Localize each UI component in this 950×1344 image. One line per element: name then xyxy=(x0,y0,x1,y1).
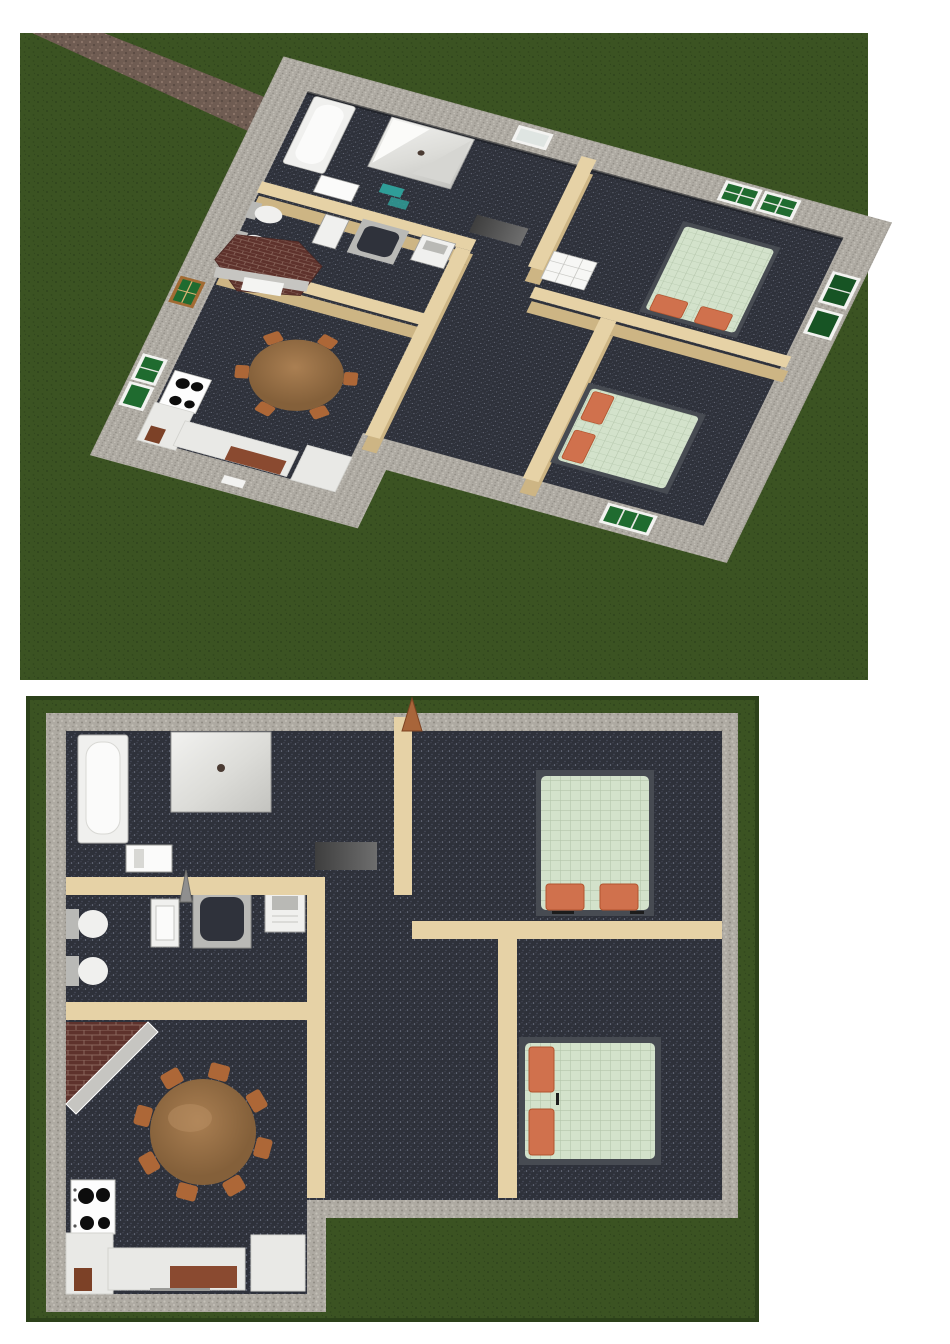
render-3d-view xyxy=(20,33,888,680)
toilet-tank xyxy=(66,909,79,939)
bed-leg-mark xyxy=(630,911,644,914)
vanity-basin xyxy=(200,897,244,941)
dresser xyxy=(315,842,377,870)
bathtub-basin xyxy=(86,742,120,834)
shower-drain xyxy=(217,764,225,772)
page-canvas xyxy=(0,0,950,1344)
wall-dining-north xyxy=(66,1002,325,1020)
toilet-tank-2 xyxy=(66,956,79,986)
cutting-board xyxy=(170,1266,237,1288)
pillow xyxy=(529,1109,554,1155)
floor-plan-view xyxy=(28,698,757,1320)
wall-entry xyxy=(394,717,412,895)
toilet-bowl-2 xyxy=(78,957,108,985)
bedroom2-plan xyxy=(519,1037,661,1165)
wall-bath-divider xyxy=(66,877,325,895)
pillow xyxy=(600,884,638,910)
bidet-basin xyxy=(156,906,174,940)
bed-leg-mark xyxy=(556,1093,559,1105)
round-dining-table xyxy=(150,1079,256,1185)
toilet-bowl xyxy=(78,910,108,938)
table-wood-blotch xyxy=(168,1104,212,1132)
wall-cabinet xyxy=(126,845,172,872)
wall-hall-west xyxy=(307,895,325,1198)
pillow xyxy=(529,1047,554,1092)
bedroom1-plan xyxy=(536,770,654,916)
bed-leg-mark xyxy=(552,911,574,914)
wall-bedroom2-west xyxy=(498,939,517,1198)
cutting-board xyxy=(74,1268,92,1291)
pillow xyxy=(546,884,584,910)
wall-bedroom1-south xyxy=(412,921,722,939)
wall-cabinet-detail xyxy=(134,849,144,868)
counter-edge-line xyxy=(150,1288,210,1291)
counter-island xyxy=(251,1235,305,1291)
sink-basin xyxy=(272,896,298,910)
